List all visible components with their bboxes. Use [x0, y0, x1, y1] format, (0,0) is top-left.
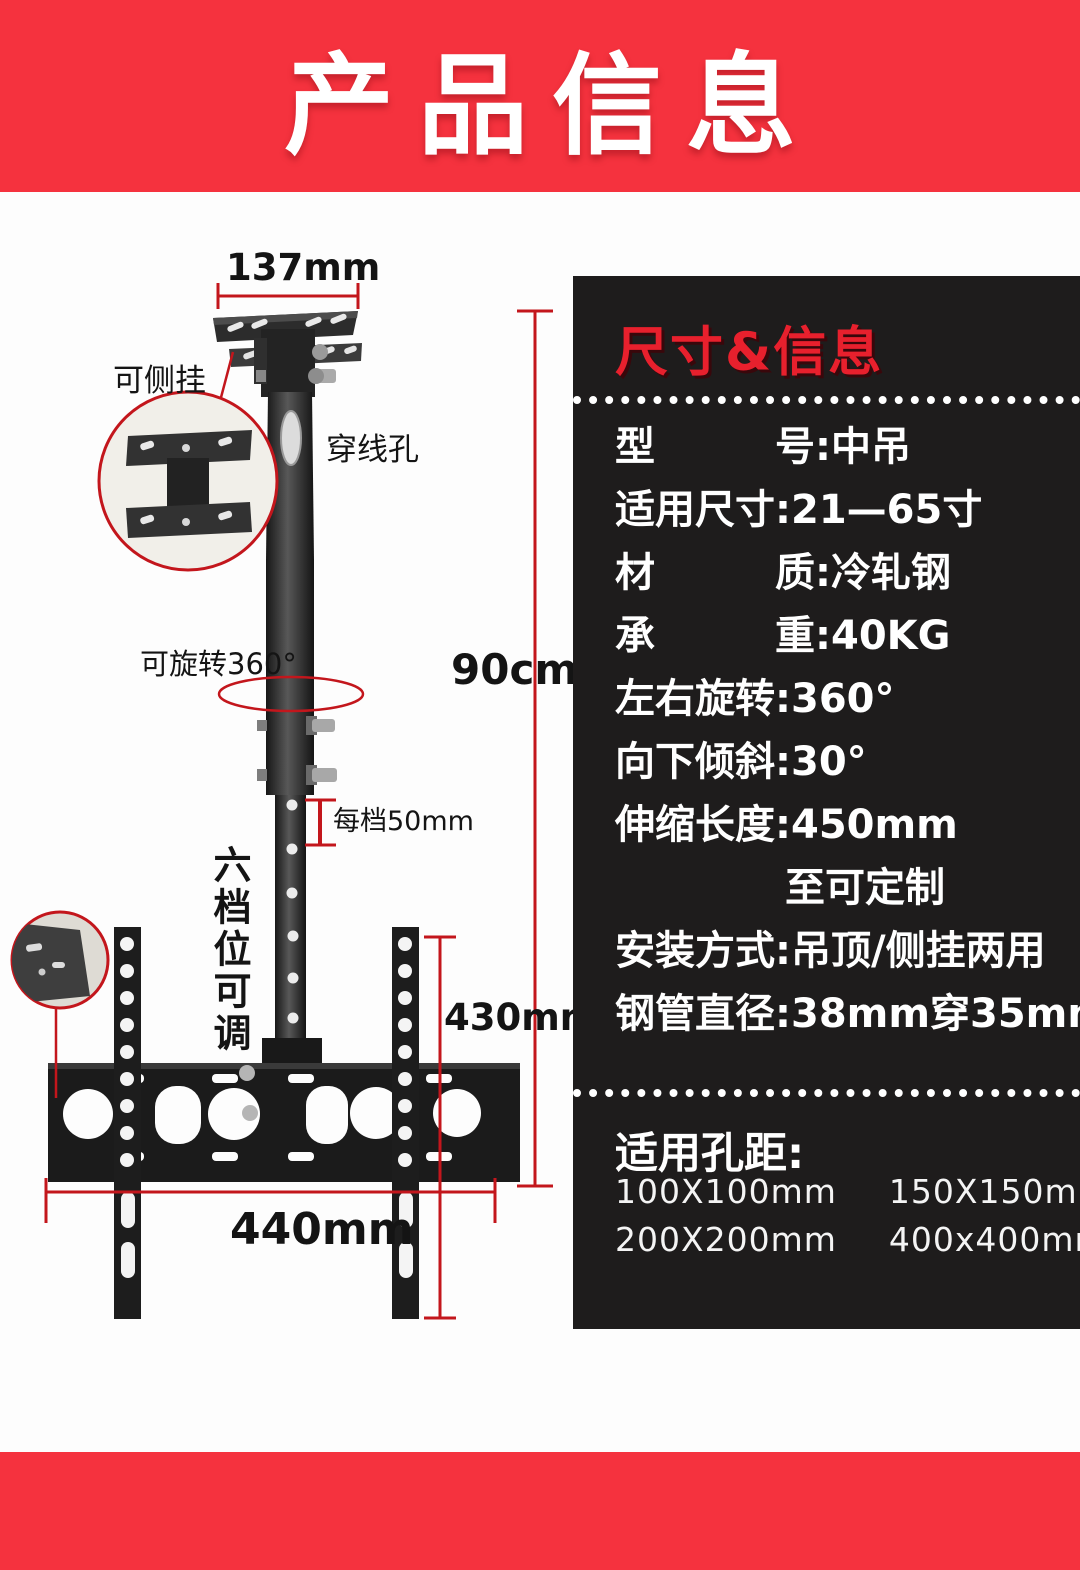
hole-distance-row: 200X200mm 400x400mm — [615, 1220, 1072, 1259]
spec-load: 承 重:40KG — [615, 605, 1072, 668]
spec-panel-title: 尺寸&信息 — [615, 310, 883, 386]
spec-model: 型 号:中吊 — [615, 416, 1072, 479]
spec-rotation: 左右旋转:360° — [615, 668, 1072, 731]
drop-height-dimension: 90cm — [451, 645, 578, 694]
spec-size-range: 适用尺寸:21—65寸 — [615, 479, 1072, 542]
footer-banner — [0, 1452, 1080, 1570]
plate-corner-inset — [6, 912, 108, 1008]
spec-list: 型 号:中吊 适用尺寸:21—65寸 材 质:冷轧钢 承 重:40KG 左右旋转… — [615, 416, 1072, 1046]
hole-distance-value: 400x400mm — [889, 1220, 1080, 1259]
hole-distance-row: 100X100mm 150X150mm — [615, 1172, 1072, 1211]
spec-panel: 尺寸&信息 型 号:中吊 适用尺寸:21—65寸 材 质:冷轧钢 承 重:40K… — [573, 276, 1080, 1329]
dotted-divider — [573, 1089, 1080, 1097]
hole-distance-value: 100X100mm — [615, 1172, 837, 1211]
spec-customizable: 至可定制 — [615, 857, 1072, 920]
spec-tilt: 向下倾斜:30° — [615, 731, 1072, 794]
hole-distance-value: 150X150mm — [889, 1172, 1080, 1211]
step-50mm-label: 每档50mm — [333, 799, 474, 838]
cable-hole-label: 穿线孔 — [326, 424, 419, 469]
rotate-360-label: 可旋转360° — [140, 641, 297, 683]
spec-pipe-diameter: 钢管直径:38mm穿35mm — [615, 983, 1072, 1046]
top-width-dimension: 137mm — [226, 246, 380, 289]
dotted-divider — [573, 396, 1080, 404]
hole-distance-value: 200X200mm — [615, 1220, 837, 1259]
six-position-label: 六档位可调 — [202, 845, 257, 1055]
side-mount-label: 可侧挂 — [113, 355, 206, 400]
swivel-joint — [254, 329, 336, 397]
spec-material: 材 质:冷轧钢 — [615, 542, 1072, 605]
spec-install-method: 安装方式:吊顶/侧挂两用 — [615, 920, 1072, 983]
product-info-poster: 产品信息 — [0, 0, 1080, 1570]
side-mount-inset — [99, 392, 277, 570]
spec-extension: 伸缩长度:450mm — [615, 794, 1072, 857]
cable-hole — [281, 411, 301, 465]
bracket-width-dimension: 440mm — [230, 1204, 414, 1255]
